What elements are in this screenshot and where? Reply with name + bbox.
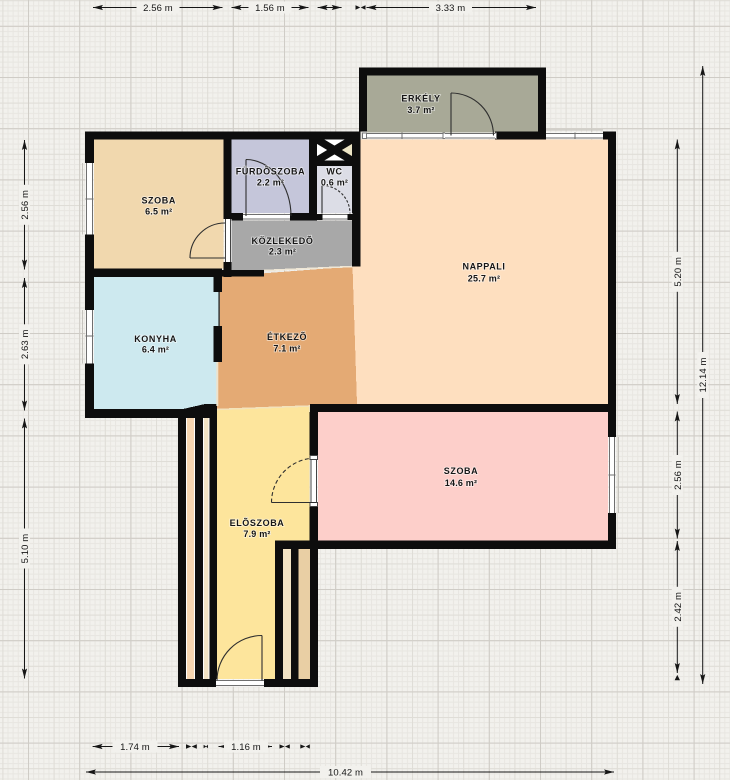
svg-text:2.2 m²: 2.2 m² <box>257 178 284 188</box>
svg-text:7.1 m²: 7.1 m² <box>273 344 300 354</box>
svg-text:ELÕSZOBA: ELÕSZOBA <box>230 518 285 528</box>
svg-text:2.56 m: 2.56 m <box>673 460 684 490</box>
svg-text:2.56 m: 2.56 m <box>20 190 31 220</box>
svg-text:2.42 m: 2.42 m <box>673 592 684 622</box>
svg-text:3.7 m²: 3.7 m² <box>407 105 434 115</box>
svg-text:ERKÉLY: ERKÉLY <box>401 94 440 104</box>
svg-text:ÉTKEZÕ: ÉTKEZÕ <box>267 332 307 342</box>
svg-text:WC: WC <box>326 167 342 177</box>
svg-text:10.42 m: 10.42 m <box>328 768 363 779</box>
svg-text:25.7 m²: 25.7 m² <box>468 274 500 284</box>
svg-text:SZOBA: SZOBA <box>444 466 479 476</box>
svg-text:3.33 m: 3.33 m <box>436 3 466 14</box>
svg-text:2.3 m²: 2.3 m² <box>269 247 296 257</box>
svg-text:2.63 m: 2.63 m <box>20 329 31 359</box>
svg-text:KÖZLEKEDÕ: KÖZLEKEDÕ <box>252 236 314 246</box>
svg-text:NAPPALI: NAPPALI <box>462 262 505 272</box>
svg-text:5.10 m: 5.10 m <box>20 534 31 564</box>
svg-text:FÜRDÕSZOBA: FÜRDÕSZOBA <box>236 167 306 177</box>
svg-text:KONYHA: KONYHA <box>134 334 177 344</box>
svg-text:5.20 m: 5.20 m <box>673 257 684 287</box>
svg-text:1.56 m: 1.56 m <box>255 3 285 14</box>
svg-text:1.16 m: 1.16 m <box>231 742 261 753</box>
svg-text:2.56 m: 2.56 m <box>143 3 173 14</box>
svg-text:6.5 m²: 6.5 m² <box>145 207 172 217</box>
svg-text:14.6 m²: 14.6 m² <box>445 478 477 488</box>
svg-text:1.74 m: 1.74 m <box>120 742 150 753</box>
svg-text:0.6 m²: 0.6 m² <box>321 178 348 188</box>
svg-text:SZOBA: SZOBA <box>141 196 176 206</box>
svg-text:12.14 m: 12.14 m <box>698 357 709 392</box>
svg-text:6.4 m²: 6.4 m² <box>142 345 169 355</box>
svg-text:7.9 m²: 7.9 m² <box>243 529 270 539</box>
